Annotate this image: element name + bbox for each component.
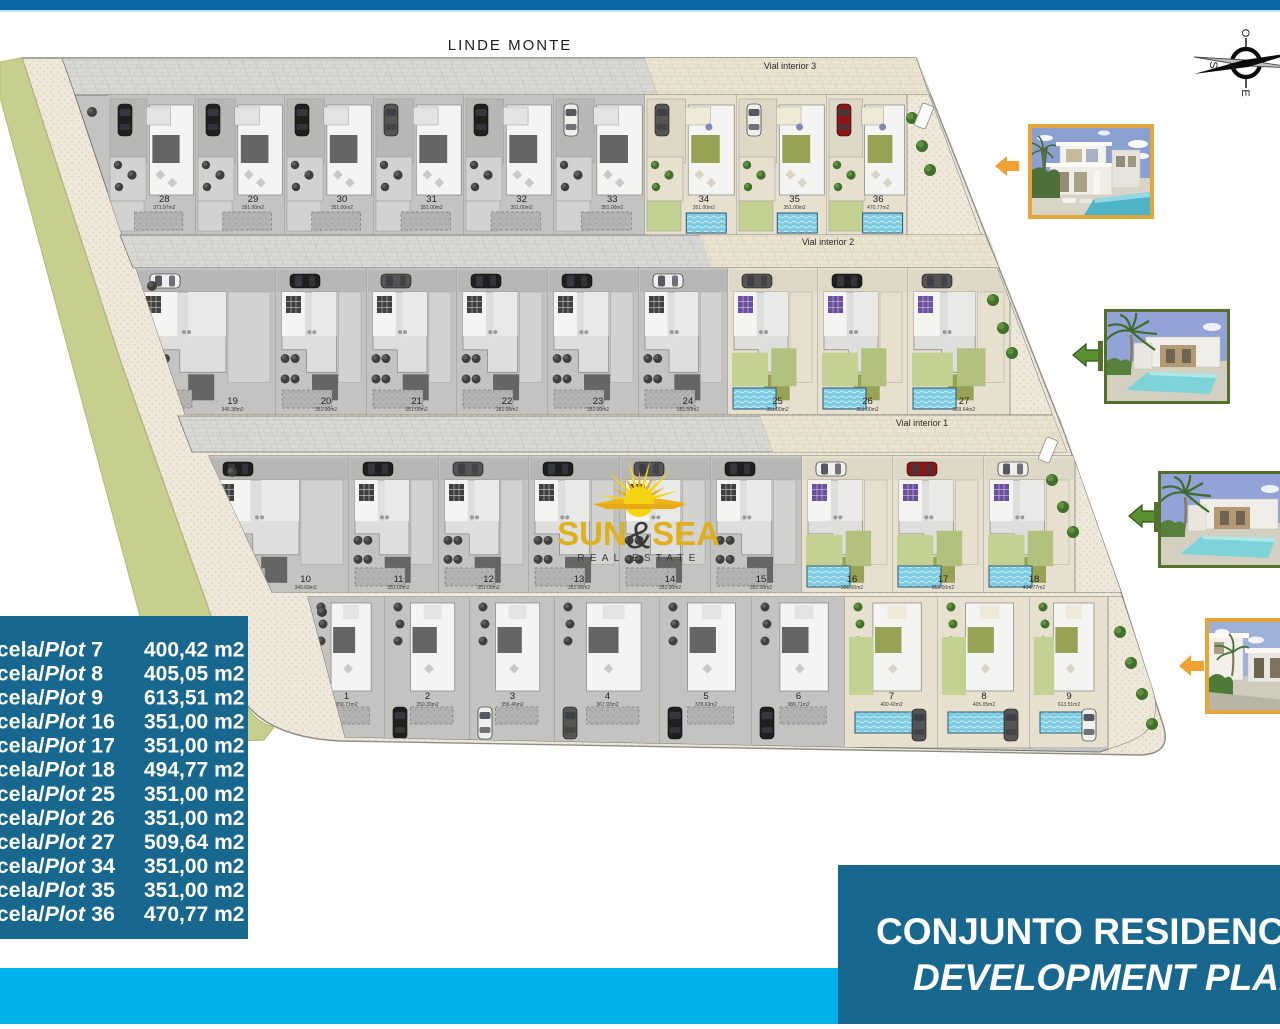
svg-text:351.00m2: 351.00m2: [841, 585, 863, 591]
svg-text:Vial interior 2: Vial interior 2: [802, 237, 854, 247]
svg-text:O: O: [1239, 29, 1251, 38]
svg-text:10: 10: [300, 574, 311, 585]
svg-text:350.71m2: 350.71m2: [335, 702, 357, 708]
svg-text:405.05m2: 405.05m2: [973, 702, 995, 708]
svg-text:11: 11: [394, 574, 404, 585]
svg-text:SUN: SUN: [557, 515, 627, 552]
svg-text:351.00m2: 351.00m2: [477, 585, 499, 591]
svg-text:14: 14: [665, 574, 676, 585]
svg-text:351.00m2: 351.00m2: [510, 205, 532, 211]
svg-text:8: 8: [981, 691, 986, 702]
svg-text:351.00m2: 351.00m2: [387, 585, 409, 591]
svg-text:Parcela/Plot 36: Parcela/Plot 36: [0, 902, 115, 926]
svg-text:351,00 m2: 351,00 m2: [144, 807, 244, 830]
svg-text:DEVELOPMENT PLAN: DEVELOPMENT PLAN: [913, 957, 1280, 998]
svg-text:Parcela/Plot 18: Parcela/Plot 18: [0, 758, 115, 782]
svg-text:13: 13: [574, 574, 585, 585]
svg-text:&: &: [626, 515, 651, 557]
svg-text:34: 34: [699, 194, 710, 205]
svg-text:470.77m2: 470.77m2: [867, 205, 889, 211]
svg-text:30: 30: [337, 194, 348, 205]
svg-text:Parcela/Plot 7: Parcela/Plot 7: [0, 638, 103, 662]
svg-text:25: 25: [772, 396, 783, 407]
svg-text:351.00m2: 351.00m2: [601, 205, 623, 211]
svg-text:28: 28: [159, 194, 170, 205]
svg-text:351.00m2: 351.00m2: [568, 585, 590, 591]
svg-text:31: 31: [426, 194, 437, 205]
svg-text:35: 35: [789, 194, 800, 205]
svg-text:Vial interior 1: Vial interior 1: [896, 418, 948, 428]
svg-text:9: 9: [1066, 691, 1071, 702]
svg-text:4: 4: [605, 691, 610, 702]
svg-text:613,51 m2: 613,51 m2: [144, 687, 244, 710]
svg-text:3: 3: [510, 691, 515, 702]
svg-text:351.00m2: 351.00m2: [783, 205, 805, 211]
svg-text:509,64 m2: 509,64 m2: [144, 831, 244, 854]
svg-text:1: 1: [344, 691, 349, 702]
svg-text:351.00m2: 351.00m2: [587, 407, 609, 413]
svg-text:16: 16: [847, 574, 858, 585]
svg-text:19: 19: [227, 396, 238, 407]
svg-text:351.00m2: 351.00m2: [405, 407, 427, 413]
svg-text:Parcela/Plot 25: Parcela/Plot 25: [0, 782, 115, 806]
svg-text:351.00m2: 351.00m2: [659, 585, 681, 591]
svg-text:32: 32: [516, 194, 527, 205]
svg-text:405,05 m2: 405,05 m2: [144, 663, 244, 686]
svg-text:29: 29: [248, 194, 259, 205]
svg-text:351.00m2: 351.00m2: [331, 205, 353, 211]
svg-text:17: 17: [938, 574, 949, 585]
svg-text:371.97m2: 371.97m2: [153, 205, 175, 211]
svg-text:Vial interior 3: Vial interior 3: [764, 61, 816, 71]
svg-text:400,42 m2: 400,42 m2: [144, 639, 244, 662]
svg-text:351.00m2: 351.00m2: [496, 407, 518, 413]
svg-text:Parcela/Plot 16: Parcela/Plot 16: [0, 710, 115, 734]
svg-text:15: 15: [756, 574, 767, 585]
svg-text:Parcela/Plot 8: Parcela/Plot 8: [0, 662, 103, 686]
svg-text:22: 22: [502, 396, 513, 407]
svg-text:5: 5: [703, 691, 708, 702]
svg-text:351.00m2: 351.00m2: [750, 585, 772, 591]
svg-text:24: 24: [683, 396, 694, 407]
svg-text:Parcela/Plot 27: Parcela/Plot 27: [0, 830, 115, 854]
svg-text:509.64m2: 509.64m2: [953, 407, 975, 413]
svg-text:400.42m2: 400.42m2: [880, 702, 902, 708]
svg-text:350.30m2: 350.30m2: [416, 702, 438, 708]
svg-text:351.00m2: 351.00m2: [932, 585, 954, 591]
svg-text:21: 21: [411, 396, 422, 407]
svg-text:351,00 m2: 351,00 m2: [144, 735, 244, 758]
svg-text:REAL ESTATE: REAL ESTATE: [577, 553, 700, 564]
svg-text:20: 20: [321, 396, 332, 407]
svg-text:367.93m2: 367.93m2: [596, 702, 618, 708]
svg-text:351,00 m2: 351,00 m2: [144, 711, 244, 734]
svg-text:2: 2: [425, 691, 430, 702]
svg-text:345.38m2: 345.38m2: [221, 407, 243, 413]
svg-text:389.71m2: 389.71m2: [787, 702, 809, 708]
svg-text:23: 23: [593, 396, 604, 407]
svg-text:351,00 m2: 351,00 m2: [144, 783, 244, 806]
svg-text:351,00 m2: 351,00 m2: [144, 879, 244, 902]
svg-text:351.00m2: 351.00m2: [420, 205, 442, 211]
svg-text:Parcela/Plot 26: Parcela/Plot 26: [0, 806, 115, 830]
svg-text:27: 27: [959, 396, 970, 407]
svg-text:12: 12: [483, 574, 494, 585]
svg-text:Parcela/Plot 35: Parcela/Plot 35: [0, 878, 115, 902]
svg-text:S: S: [1207, 61, 1219, 68]
svg-text:26: 26: [862, 396, 873, 407]
svg-text:CONJUNTO RESIDENCIAL: CONJUNTO RESIDENCIAL: [876, 911, 1280, 952]
svg-text:351.00m2: 351.00m2: [693, 205, 715, 211]
svg-text:378.63m2: 378.63m2: [695, 702, 717, 708]
svg-text:SEA: SEA: [652, 515, 720, 552]
svg-text:356.46m2: 356.46m2: [501, 702, 523, 708]
svg-text:6: 6: [796, 691, 801, 702]
svg-text:351.00m2: 351.00m2: [677, 407, 699, 413]
svg-text:351,00 m2: 351,00 m2: [144, 855, 244, 878]
svg-text:Parcela/Plot 9: Parcela/Plot 9: [0, 686, 103, 710]
svg-text:494.77m2: 494.77m2: [1023, 585, 1045, 591]
svg-text:7: 7: [889, 691, 894, 702]
svg-text:E: E: [1239, 89, 1251, 96]
svg-text:36: 36: [873, 194, 884, 205]
svg-text:Parcela/Plot 34: Parcela/Plot 34: [0, 854, 115, 878]
svg-text:351.00m2: 351.00m2: [766, 407, 788, 413]
svg-text:349.69m2: 349.69m2: [294, 585, 316, 591]
svg-text:494,77 m2: 494,77 m2: [144, 759, 244, 782]
svg-text:351.00m2: 351.00m2: [856, 407, 878, 413]
svg-text:470,77 m2: 470,77 m2: [144, 903, 244, 926]
svg-text:Parcela/Plot 17: Parcela/Plot 17: [0, 734, 115, 758]
svg-text:351.00m2: 351.00m2: [315, 407, 337, 413]
svg-text:18: 18: [1029, 574, 1040, 585]
svg-text:613.51m2: 613.51m2: [1058, 702, 1080, 708]
svg-text:33: 33: [607, 194, 618, 205]
svg-text:LINDE MONTE: LINDE MONTE: [448, 37, 573, 54]
svg-text:351.00m2: 351.00m2: [242, 205, 264, 211]
